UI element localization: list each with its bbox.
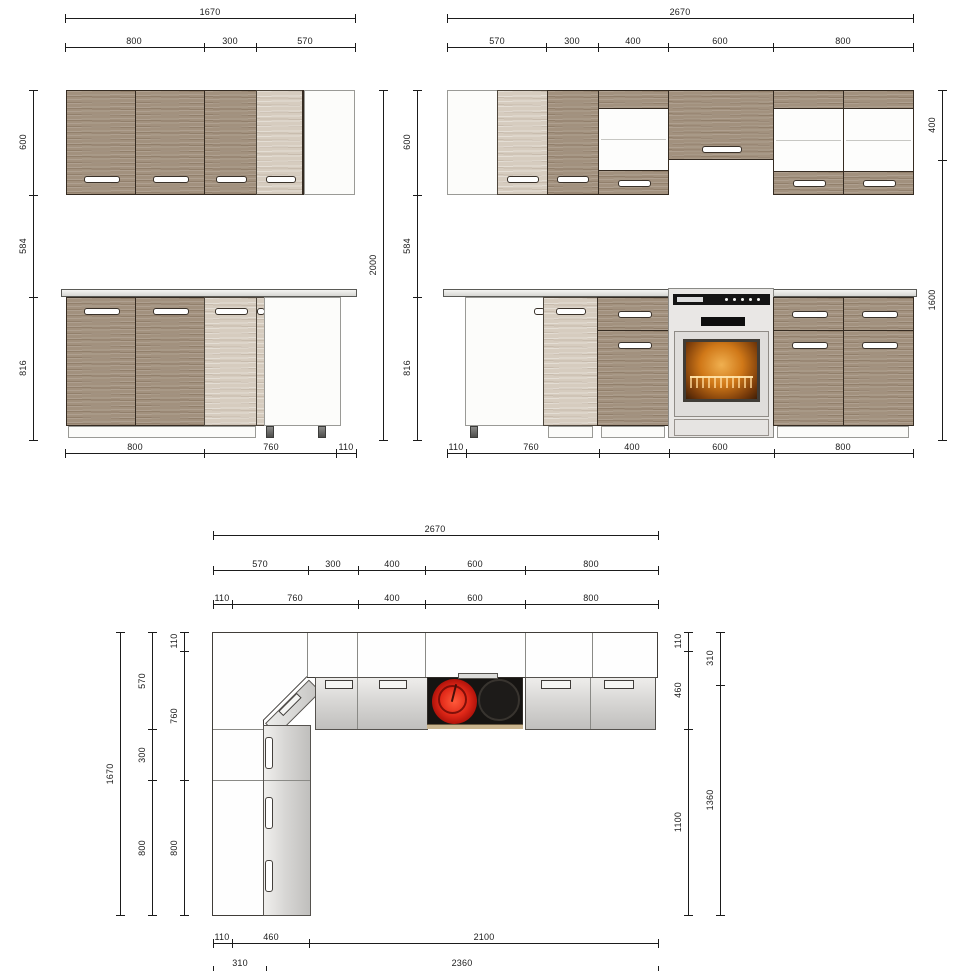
dim-line	[213, 604, 658, 605]
cabinet-division	[525, 633, 526, 677]
dim-label: 2360	[452, 958, 473, 968]
dim-tick	[213, 531, 214, 540]
dim-label: 2100	[474, 932, 495, 942]
dim-line	[720, 632, 721, 916]
dim-label: 310	[705, 650, 715, 666]
dim-tick	[213, 566, 214, 575]
countertop-plan-left	[212, 677, 263, 916]
dim-label: 760	[287, 593, 303, 603]
dim-tick	[180, 651, 189, 652]
dim-label: 460	[263, 932, 279, 942]
dim-label: 300	[325, 559, 341, 569]
door-handle	[265, 737, 273, 769]
dim-tick	[684, 632, 693, 633]
door-handle	[265, 860, 273, 892]
cabinet-division	[213, 729, 263, 730]
dim-label: 310	[232, 958, 248, 968]
dim-tick	[658, 566, 659, 575]
dim-label: 800	[583, 593, 599, 603]
dim-tick	[658, 600, 659, 609]
dim-line	[213, 943, 658, 944]
door-handle	[325, 680, 353, 689]
dim-tick	[358, 600, 359, 609]
dim-tick	[684, 915, 693, 916]
dim-tick	[116, 915, 125, 916]
dim-tick	[684, 651, 693, 652]
dim-tick	[525, 566, 526, 575]
dim-tick	[232, 939, 233, 948]
cabinet-division	[213, 780, 263, 781]
dim-label: 760	[169, 708, 179, 724]
counter-edge	[212, 915, 263, 916]
dim-tick	[232, 600, 233, 609]
counter-edge	[212, 632, 213, 916]
dim-tick	[658, 531, 659, 540]
dim-tick	[425, 600, 426, 609]
dim-tick	[684, 729, 693, 730]
hob-frame-edge	[458, 673, 498, 679]
dim-label: 400	[384, 559, 400, 569]
cabinet-division	[425, 633, 426, 677]
dim-label: 300	[137, 747, 147, 763]
dim-label: 110	[215, 593, 230, 603]
dim-tick	[716, 685, 725, 686]
dim-tick	[308, 566, 309, 575]
cabinet-division	[357, 678, 358, 729]
dim-label: 800	[169, 840, 179, 856]
dim-tick	[658, 939, 659, 948]
dim-tick	[358, 566, 359, 575]
dim-line	[184, 632, 185, 916]
dim-label: 1670	[105, 764, 115, 785]
dim-label: 1360	[705, 790, 715, 811]
counter-wood-edge	[427, 724, 523, 729]
counter-edge	[657, 632, 658, 677]
dim-label: 1100	[673, 812, 683, 832]
door-handle	[379, 680, 407, 689]
door-handle	[541, 680, 571, 689]
cabinet-division	[307, 633, 308, 677]
dim-label: 800	[583, 559, 599, 569]
dim-label: 600	[467, 559, 483, 569]
door-handle	[265, 797, 273, 829]
door-handle	[604, 680, 634, 689]
dim-tick	[266, 966, 267, 971]
dim-line	[688, 632, 689, 916]
dim-tick	[180, 780, 189, 781]
dim-tick	[309, 939, 310, 948]
dim-tick	[525, 600, 526, 609]
dim-tick	[658, 966, 659, 971]
dim-label: 400	[384, 593, 400, 603]
dim-label: 570	[137, 673, 147, 689]
dim-tick	[148, 915, 157, 916]
dim-tick	[148, 780, 157, 781]
dim-tick	[180, 915, 189, 916]
dim-tick	[148, 729, 157, 730]
dim-tick	[716, 632, 725, 633]
cabinet-division	[357, 633, 358, 677]
dim-tick	[213, 966, 214, 971]
dim-label: 110	[215, 932, 230, 942]
dim-label: 800	[137, 840, 147, 856]
kitchen-technical-drawing: 1670 800 300 570 600 584 816 2000	[0, 0, 970, 971]
cabinet-division	[590, 678, 591, 729]
dim-label: 600	[467, 593, 483, 603]
dim-label: 460	[673, 682, 683, 698]
dim-line	[213, 535, 658, 536]
hob-burner-active	[432, 679, 477, 724]
dim-tick	[148, 632, 157, 633]
dim-tick	[425, 566, 426, 575]
plan-view: 2670 570 300 400 600 800 110 760 400 600…	[0, 0, 970, 971]
cabinet-division	[264, 780, 310, 781]
dim-label: 110	[673, 634, 683, 649]
dim-label: 2670	[425, 524, 446, 534]
hob-burner	[478, 679, 520, 721]
dim-line	[120, 632, 121, 916]
dim-tick	[716, 915, 725, 916]
dim-label: 110	[169, 634, 179, 649]
cabinet-division	[592, 633, 593, 677]
dim-line	[152, 632, 153, 916]
dim-tick	[180, 632, 189, 633]
dim-tick	[116, 632, 125, 633]
dim-label: 570	[252, 559, 268, 569]
dim-line	[213, 570, 658, 571]
